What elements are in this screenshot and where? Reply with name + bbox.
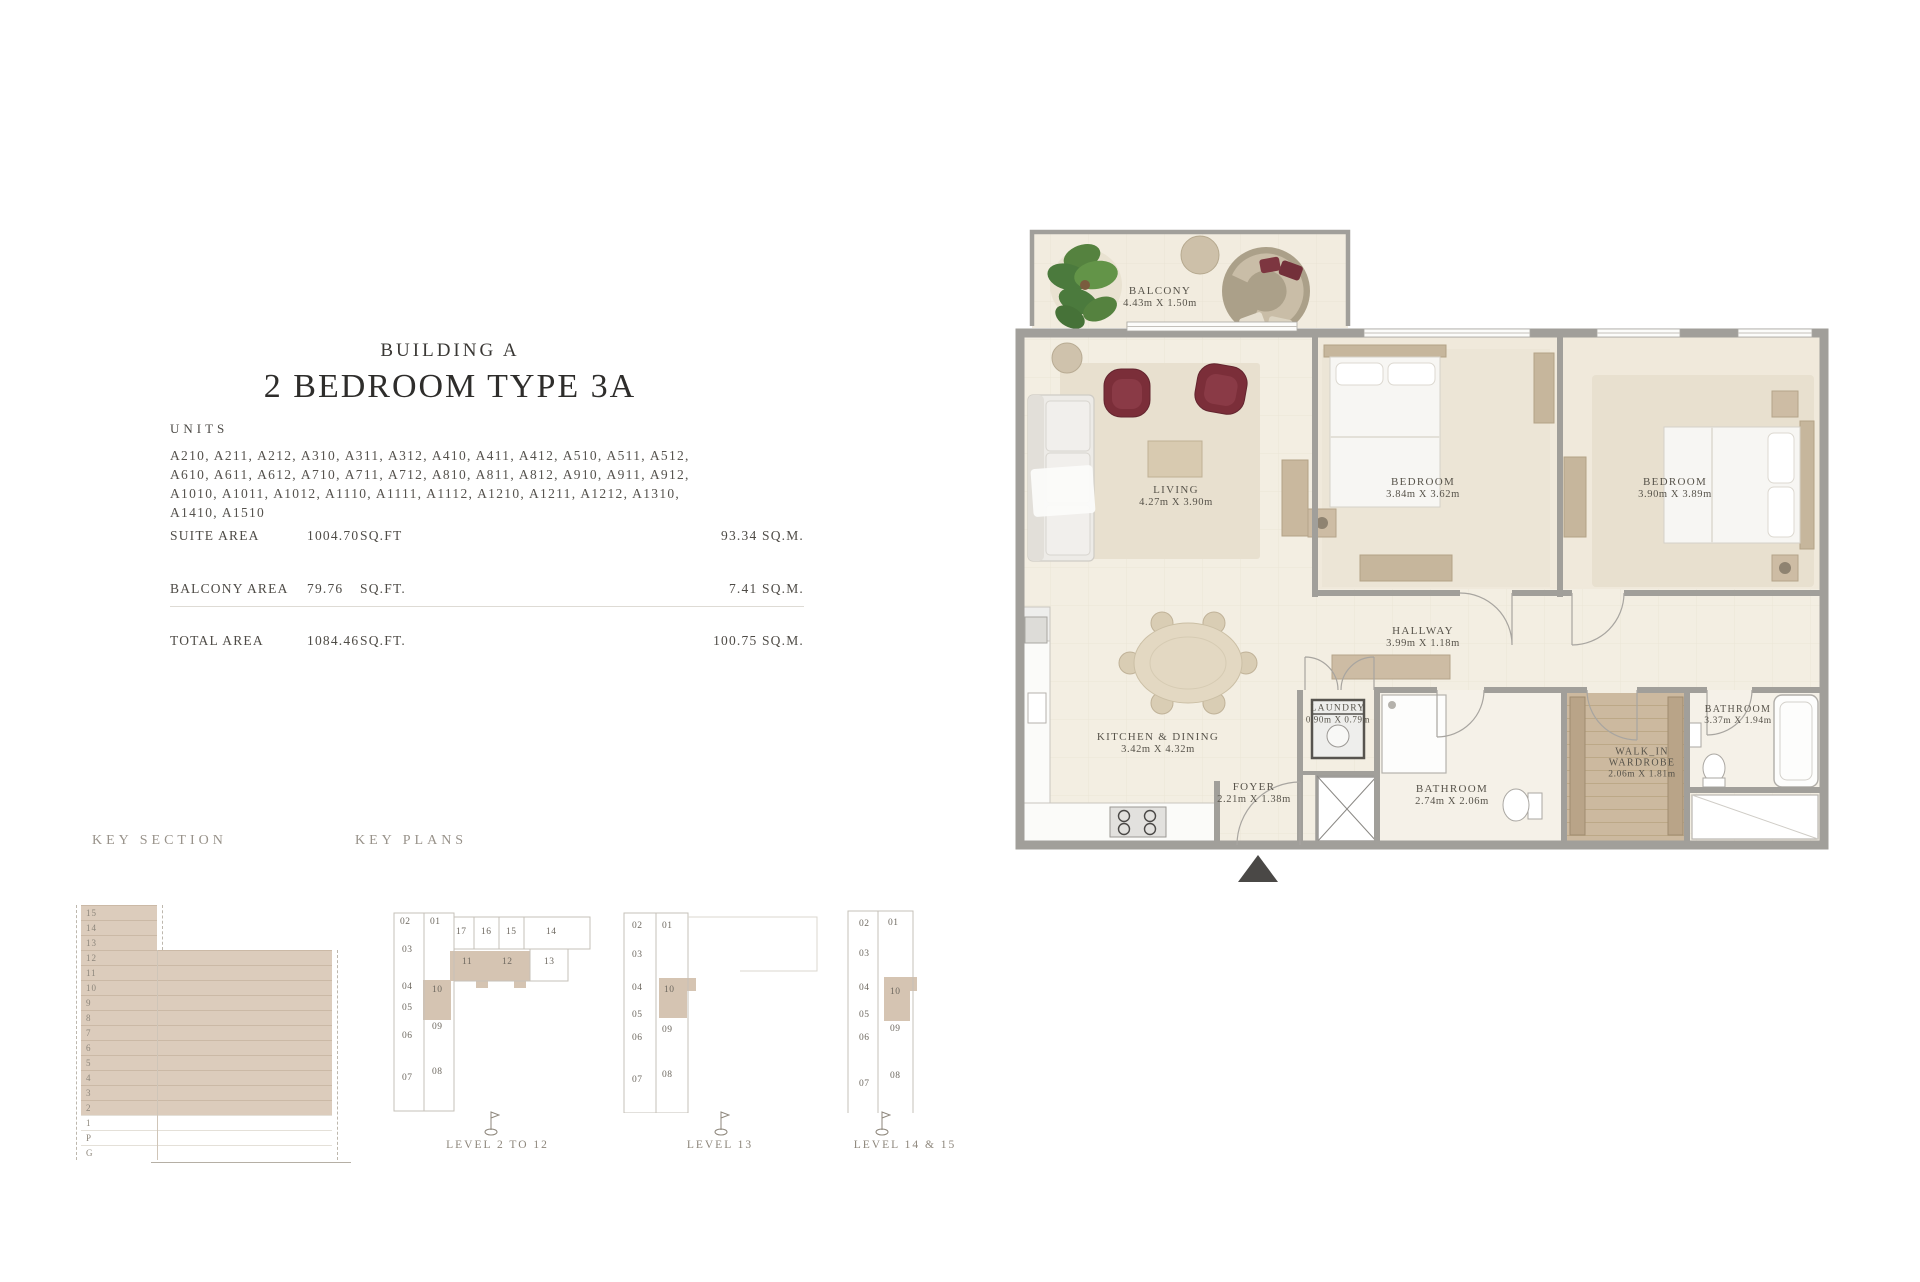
section-floor-row: 13 bbox=[81, 935, 157, 951]
units-line: A210, A211, A212, A310, A311, A312, A410… bbox=[170, 446, 690, 465]
unit-cell: 02 bbox=[859, 919, 870, 929]
section-floor-row: G bbox=[81, 1145, 332, 1161]
section-tick-line bbox=[337, 950, 338, 1160]
key-plan-outline bbox=[845, 903, 1015, 1113]
unit-cell: 01 bbox=[662, 921, 673, 931]
unit-cell: 08 bbox=[890, 1071, 901, 1081]
living-side-table bbox=[1052, 343, 1082, 373]
armchair bbox=[1104, 369, 1150, 417]
unit-cell: 06 bbox=[859, 1033, 870, 1043]
section-floor-row: 11 bbox=[81, 965, 332, 981]
unit-cell: 03 bbox=[859, 949, 870, 959]
balcony-area-sqm: 7.41 SQ.M. bbox=[729, 581, 804, 597]
level-flag-icon bbox=[712, 1109, 730, 1137]
ac-closet bbox=[1025, 617, 1047, 643]
ground-line bbox=[151, 1162, 351, 1163]
section-floor-row: 8 bbox=[81, 1010, 332, 1026]
level-label: LEVEL 14 & 15 bbox=[825, 1139, 985, 1151]
unit-cell: 05 bbox=[859, 1010, 870, 1020]
toilet bbox=[1503, 789, 1542, 821]
service-ledge bbox=[1692, 795, 1818, 839]
units-list: A210, A211, A212, A310, A311, A312, A410… bbox=[170, 446, 690, 522]
section-floor-row: 14 bbox=[81, 920, 157, 936]
key-plans-heading: KEY PLANS bbox=[355, 833, 467, 849]
section-tick-line bbox=[76, 905, 77, 1160]
bathtub bbox=[1774, 695, 1818, 787]
unit-cell: 08 bbox=[432, 1067, 443, 1077]
units-heading: UNITS bbox=[170, 421, 228, 437]
section-floor-row: 7 bbox=[81, 1025, 332, 1041]
unit-cell: 09 bbox=[662, 1025, 673, 1035]
unit-cell: 17 bbox=[456, 927, 467, 937]
unit-cell: 04 bbox=[632, 983, 643, 993]
section-floor-row: 4 bbox=[81, 1070, 332, 1086]
balcony-side-table bbox=[1181, 236, 1219, 274]
level-flag-icon bbox=[873, 1109, 891, 1137]
unit-cell: 07 bbox=[859, 1079, 870, 1089]
unit-cell: 14 bbox=[546, 927, 557, 937]
page-title: 2 BEDROOM TYPE 3A bbox=[170, 368, 730, 406]
unit-cell: 10 bbox=[890, 987, 901, 997]
tower-projection-line bbox=[157, 950, 158, 1160]
key-plan-level-13: 02 01 03 04 10 05 09 06 07 08 LEVEL 13 bbox=[620, 903, 835, 1178]
balcony-area-unit: SQ.FT. bbox=[360, 581, 406, 597]
key-section-heading: KEY SECTION bbox=[92, 833, 227, 849]
tv-cabinet bbox=[1282, 460, 1308, 536]
level-label: LEVEL 13 bbox=[620, 1139, 820, 1151]
entrance-marker bbox=[1238, 855, 1278, 882]
suite-area-unit: SQ.FT bbox=[360, 528, 402, 544]
building-label: BUILDING A bbox=[170, 340, 730, 362]
unit-cell: 12 bbox=[502, 957, 513, 967]
units-line: A1010, A1011, A1012, A1110, A1111, A1112… bbox=[170, 484, 690, 503]
section-floor-row: 1 bbox=[81, 1115, 332, 1131]
units-line: A610, A611, A612, A710, A711, A712, A810… bbox=[170, 465, 690, 484]
unit-cell: 09 bbox=[890, 1024, 901, 1034]
balcony-area-label: BALCONY AREA bbox=[170, 581, 289, 597]
section-floor-row: 6 bbox=[81, 1040, 332, 1056]
suite-area-label: SUITE AREA bbox=[170, 528, 260, 544]
unit-cell: 01 bbox=[430, 917, 441, 927]
bathroom2-sink bbox=[1689, 723, 1701, 747]
total-area-sqft: 1084.46 bbox=[307, 633, 362, 649]
floor-plan-drawing bbox=[1012, 225, 1832, 887]
title-block: BUILDING A 2 BEDROOM TYPE 3A bbox=[170, 340, 730, 406]
section-floor-row: 5 bbox=[81, 1055, 332, 1071]
key-plan-outline bbox=[620, 903, 835, 1113]
unit-cell: 04 bbox=[859, 983, 870, 993]
unit-cell: 13 bbox=[544, 957, 555, 967]
suite-area-sqft: 1004.70 bbox=[307, 528, 362, 544]
unit-cell: 05 bbox=[632, 1010, 643, 1020]
unit-cell: 03 bbox=[402, 945, 413, 955]
level-label: LEVEL 2 TO 12 bbox=[390, 1139, 605, 1151]
coffee-table bbox=[1148, 441, 1202, 477]
key-plan-level-14-15: 02 01 03 04 10 05 09 06 07 08 LEVEL 14 &… bbox=[845, 903, 1015, 1178]
section-floor-row: 15 bbox=[81, 905, 157, 921]
suite-area-row: SUITE AREA 1004.70 SQ.FT 93.34 SQ.M. bbox=[170, 528, 804, 550]
unit-cell: 07 bbox=[632, 1075, 643, 1085]
total-area-sqm: 100.75 SQ.M. bbox=[713, 633, 804, 649]
section-floor-row: 9 bbox=[81, 995, 332, 1011]
unit-cell: 07 bbox=[402, 1073, 413, 1083]
section-floor-row: 12 bbox=[81, 950, 332, 966]
section-floor-row: P bbox=[81, 1130, 332, 1146]
bed-1 bbox=[1324, 345, 1446, 507]
toilet bbox=[1703, 754, 1725, 787]
laundry-washer bbox=[1312, 700, 1364, 758]
stove bbox=[1110, 807, 1166, 837]
section-floor-row: 10 bbox=[81, 980, 332, 996]
unit-cell: 06 bbox=[632, 1033, 643, 1043]
total-area-unit: SQ.FT. bbox=[360, 633, 406, 649]
section-floor-row: 3 bbox=[81, 1085, 332, 1101]
unit-cell: 10 bbox=[664, 985, 675, 995]
unit-cell: 10 bbox=[432, 985, 443, 995]
total-area-row: TOTAL AREA 1084.46 SQ.FT. 100.75 SQ.M. bbox=[170, 633, 804, 655]
unit-cell: 05 bbox=[402, 1003, 413, 1013]
key-plan-level-2-12: 02 01 17 16 15 14 03 11 12 13 10 04 05 0… bbox=[390, 903, 605, 1178]
key-section-diagram: 15 14 13 12 11 10 9 8 7 6 5 4 3 2 1 P G bbox=[81, 905, 371, 1185]
unit-cell: 01 bbox=[888, 918, 899, 928]
living-sofa bbox=[1028, 395, 1096, 561]
unit-cell: 06 bbox=[402, 1031, 413, 1041]
key-plan-outline bbox=[390, 903, 605, 1113]
total-area-label: TOTAL AREA bbox=[170, 633, 264, 649]
suite-area-sqm: 93.34 SQ.M. bbox=[721, 528, 804, 544]
unit-cell: 16 bbox=[481, 927, 492, 937]
unit-cell: 02 bbox=[632, 921, 643, 931]
elevator-shaft bbox=[1317, 776, 1377, 842]
unit-cell: 03 bbox=[632, 950, 643, 960]
table-divider bbox=[170, 606, 804, 607]
unit-cell: 02 bbox=[400, 917, 411, 927]
bedroom2-wardrobe-strip bbox=[1564, 457, 1586, 537]
section-floor-row: 2 bbox=[81, 1100, 332, 1116]
balcony-area-row: BALCONY AREA 79.76 SQ.FT. 7.41 SQ.M. bbox=[170, 581, 804, 603]
bed-2 bbox=[1664, 421, 1814, 549]
unit-cell: 15 bbox=[506, 927, 517, 937]
unit-cell: 04 bbox=[402, 982, 413, 992]
level-flag-icon bbox=[482, 1109, 500, 1137]
unit-cell: 11 bbox=[462, 957, 472, 967]
balcony-area-sqft: 79.76 bbox=[307, 581, 362, 597]
unit-cell: 09 bbox=[432, 1022, 443, 1032]
section-tick-line bbox=[162, 905, 163, 950]
unit-cell: 08 bbox=[662, 1070, 673, 1080]
floor-plan: BALCONY 4.43m X 1.50m LIVING 4.27m X 3.9… bbox=[1012, 225, 1832, 887]
units-line: A1410, A1510 bbox=[170, 503, 690, 522]
